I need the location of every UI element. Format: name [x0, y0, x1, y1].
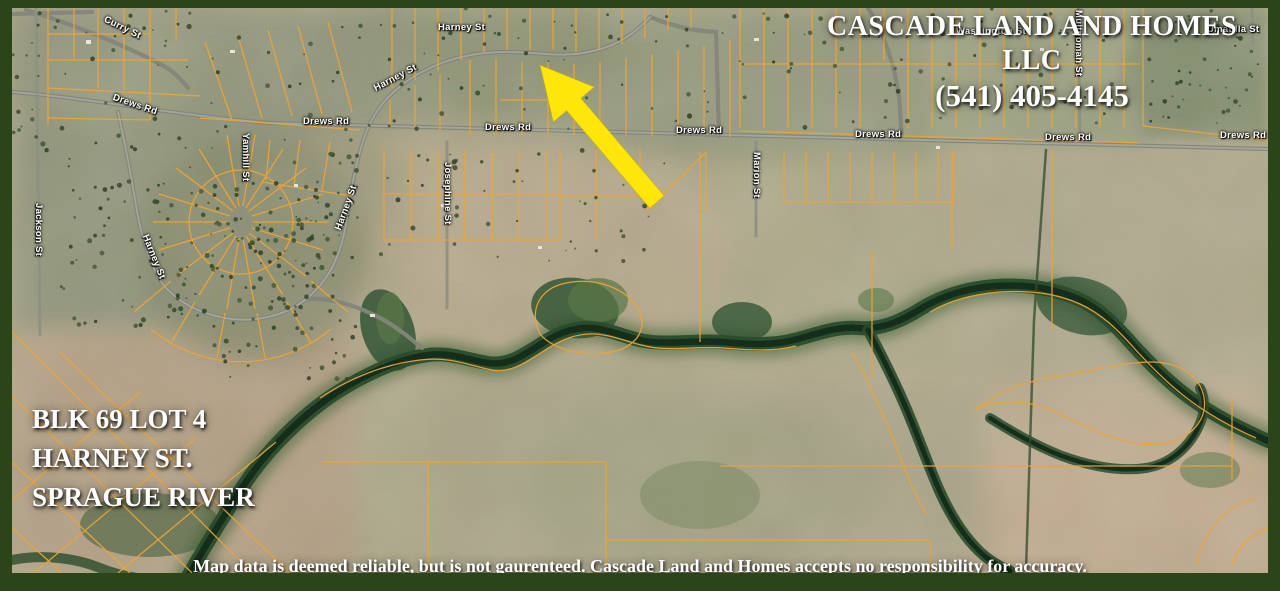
street-label-drews-rd: Drews Rd [1045, 132, 1091, 143]
company-phone: (541) 405-4145 [814, 78, 1250, 114]
street-label-marion-st: Marion St [751, 152, 762, 198]
company-name: CASCADE LAND AND HOMES LLC [814, 10, 1250, 78]
company-branding: CASCADE LAND AND HOMES LLC (541) 405-414… [814, 10, 1250, 114]
street-label-harney-st: Harney St [438, 22, 485, 33]
disclaimer-text: Map data is deemed reliable, but is not … [12, 556, 1268, 573]
property-area: SPRAGUE RIVER [32, 478, 255, 517]
property-street: HARNEY ST. [32, 439, 255, 478]
property-id-block: BLK 69 LOT 4 HARNEY ST. SPRAGUE RIVER [32, 400, 255, 517]
property-lot: BLK 69 LOT 4 [32, 400, 255, 439]
satellite-map: Curry St Drews Rd Drews Rd Drews Rd Drew… [12, 8, 1268, 573]
street-label-drews-rd: Drews Rd [1220, 130, 1266, 141]
street-label-yamhill-st: Yamhill St [240, 133, 251, 181]
street-label-drews-rd: Drews Rd [485, 122, 531, 133]
street-label-josephine-st: Josephine St [442, 162, 453, 225]
street-label-drews-rd: Drews Rd [855, 129, 901, 140]
listing-map-flyer: Curry St Drews Rd Drews Rd Drews Rd Drew… [0, 0, 1280, 591]
street-label-drews-rd: Drews Rd [676, 125, 722, 136]
street-label-jackson-st: Jackson St [33, 203, 44, 256]
street-label-drews-rd: Drews Rd [303, 116, 349, 127]
